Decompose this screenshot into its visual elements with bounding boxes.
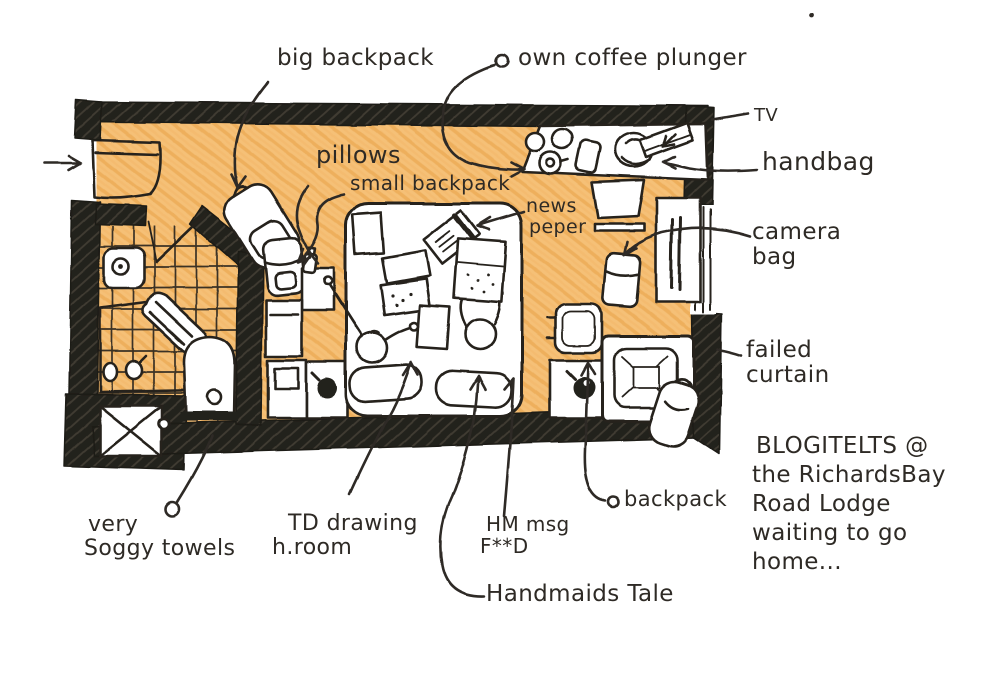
label-camera-bag: camera bag: [752, 220, 841, 271]
pillow-icon: [349, 364, 423, 403]
label-newspaper: news peper: [526, 196, 586, 238]
label-failed-curtain-line1: failed: [746, 338, 830, 363]
label-td-drawing-line2: h.room: [272, 536, 418, 560]
cup-icon: [552, 129, 572, 149]
caption-line1: BLOGITELTS @: [756, 432, 946, 461]
label-handbag: handbag: [762, 148, 875, 176]
label-hm-msg-line1: HM msg: [486, 513, 570, 535]
label-hm-msg-line2: F**D: [480, 535, 570, 557]
label-tv: TV: [754, 106, 778, 126]
caption-line3: Road Lodge: [752, 490, 946, 519]
label-td-drawing: TD drawing h.room: [272, 512, 418, 560]
caption-line5: home...: [752, 548, 946, 577]
leader-tv: [712, 114, 748, 120]
entrance-arrow-icon: [44, 156, 80, 170]
stool-icon: [592, 180, 644, 231]
camera-bag-icon: [603, 253, 641, 308]
curtain-icon: [656, 198, 700, 302]
label-td-drawing-line1: TD drawing: [288, 512, 418, 536]
cup-icon: [526, 133, 544, 151]
nightstand-left: [306, 362, 348, 418]
pillow-icon: [435, 370, 513, 408]
wall-right-bottom: [692, 312, 722, 455]
sketch-page: big backpack own coffee plunger TV handb…: [0, 0, 1000, 678]
caption-line4: waiting to go: [752, 519, 946, 548]
caption-line2: the RichardsBay: [752, 461, 946, 490]
sink-icon: [104, 248, 144, 288]
wall-left-top-stub: [74, 100, 102, 140]
label-camera-bag-line1: camera: [752, 220, 841, 245]
label-failed-curtain: failed curtain: [746, 338, 830, 389]
label-backpack: backpack: [624, 488, 727, 511]
caption-note: BLOGITELTS @ the RichardsBay Road Lodge …: [752, 432, 946, 577]
wall-bathroom-top: [95, 204, 146, 226]
tablet-icon: [417, 305, 450, 349]
label-pillows: pillows: [316, 142, 401, 168]
label-handmaids-tale: Handmaids Tale: [486, 582, 674, 607]
wall-bathroom-right: [236, 252, 263, 426]
stray-dot: [810, 14, 815, 19]
label-newspaper-line1: news: [526, 196, 586, 217]
crossed-box-icon: [100, 406, 169, 456]
label-hm-msg: HM msg F**D: [480, 513, 570, 557]
side-table-icon: [548, 304, 602, 352]
carton-icon: [575, 140, 601, 174]
book-icon: [353, 213, 384, 255]
label-soggy-towels: very Soggy towels: [88, 513, 235, 561]
bed-icon: [324, 204, 522, 416]
label-soggy-towels-line1: very: [88, 513, 235, 537]
label-failed-curtain-line2: curtain: [746, 363, 830, 388]
label-newspaper-line2: peper: [529, 217, 586, 238]
label-small-backpack: small backpack: [350, 172, 510, 194]
label-big-backpack: big backpack: [277, 46, 434, 71]
label-camera-bag-line2: bag: [752, 245, 841, 270]
paper-icon: [454, 238, 506, 301]
label-soggy-towels-line2: Soggy towels: [84, 537, 235, 561]
label-own-coffee-plunger: own coffee plunger: [518, 46, 747, 71]
small-backpack-icon: [262, 236, 306, 296]
toilet-icon: [180, 337, 238, 421]
